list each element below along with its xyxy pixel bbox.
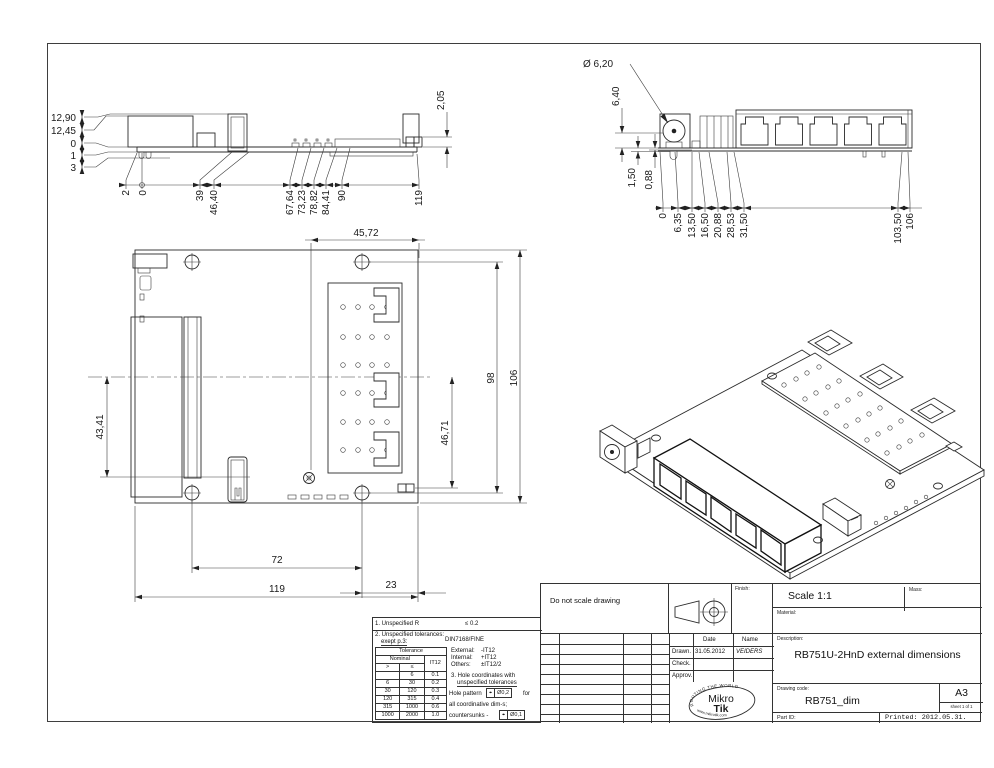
finish-label: Finish: <box>735 586 750 592</box>
sheet-label: sheet 1 of 1 <box>940 704 983 709</box>
description-label: Description: <box>777 636 803 642</box>
dimension-label: 12,90 <box>51 113 76 124</box>
shield-plate <box>328 283 402 473</box>
dimension-label: 0,88 <box>644 170 655 190</box>
front-width-dims: 0 6,35 13,50 16,50 20,88 28,53 31,50 103… <box>655 152 922 244</box>
material-cell: Material: <box>773 608 982 634</box>
description-cell: Description: RB751U-2HnD external dimens… <box>773 634 982 684</box>
note3-line2: unspecified tolerances <box>457 680 517 687</box>
hole-pattern-tolerance: ⌖Ø0,2 <box>486 688 512 698</box>
dimension-label: 20,88 <box>713 213 724 238</box>
dimension-label: 12,45 <box>51 126 76 137</box>
tol-row: 60.1 <box>376 672 447 680</box>
tol-row: 6300.2 <box>376 680 447 688</box>
note-unspecified-r: 1. Unspecified R <box>375 621 419 627</box>
dimension-label: 119 <box>414 190 425 206</box>
logo-tik: Tik <box>714 703 729 715</box>
dimension-label: 13,50 <box>687 213 698 238</box>
position-symbol-icon: ⌖ <box>487 689 494 697</box>
dimension-label: 46,71 <box>440 420 451 445</box>
projection-symbol-cell <box>669 584 732 634</box>
check-label: Check. <box>672 661 691 667</box>
dimension-label: 72 <box>271 555 283 566</box>
dimension-label: 6,35 <box>673 213 684 233</box>
format-value: A3 <box>940 687 983 699</box>
dimension-label: 0 <box>70 139 76 150</box>
dimension-label: 39 <box>195 190 206 202</box>
dimension-label: 28,53 <box>726 213 737 238</box>
hole-pattern-label: Hole pattern <box>449 691 482 697</box>
tol-row: 100020001.0 <box>376 712 447 720</box>
dimension-label: 106 <box>905 213 916 230</box>
isometric-view <box>600 330 984 579</box>
dimension-label: 119 <box>269 584 285 595</box>
dimension-label: 1 <box>70 151 76 162</box>
dc-jack-top <box>133 254 167 322</box>
drawn-label: Drawn. <box>672 649 691 655</box>
side-view: 12,90 12,45 0 1 3 2,05 <box>51 90 452 215</box>
drawing-code-label: Drawing code: <box>777 686 809 692</box>
printed-date: Printed: 2012.05.31. <box>885 714 967 722</box>
projection-symbol-icon <box>669 584 731 633</box>
dimension-label: 31,50 <box>739 213 750 238</box>
do-not-scale-cell: Do not scale drawing <box>541 584 669 634</box>
ethernet-ports <box>736 110 912 157</box>
dimension-label: 67,64 <box>285 190 296 215</box>
tol-row: 1203150.4 <box>376 696 447 704</box>
external-label: External: <box>451 648 475 654</box>
description-text: RB751U-2HnD external dimensions <box>773 649 982 661</box>
tol-row: 301200.3 <box>376 688 447 696</box>
tol-title: Tolerance <box>376 648 447 656</box>
front-view: Ø 6,20 6,40 1,50 0,88 <box>583 59 922 244</box>
screw <box>304 473 315 484</box>
dimension-label: 1,50 <box>627 168 638 188</box>
date-header: Date <box>703 637 716 643</box>
title-block: Do not scale drawing Finish: Scale 1:1 M… <box>540 583 981 722</box>
dimension-label: 78,82 <box>309 190 320 215</box>
notes-box: 1. Unspecified R ≤ 0.2 2. Unspecified to… <box>372 617 541 723</box>
dimension-label: 16,50 <box>700 213 711 238</box>
dimension-label: 98 <box>486 372 497 384</box>
dimension-label: 3 <box>70 163 76 174</box>
others-value: ±IT12/2 <box>481 662 501 668</box>
usb-top <box>228 457 247 502</box>
drawn-name: VEIDERS <box>736 649 762 655</box>
tol-it12: IT12 <box>424 656 446 672</box>
position-symbol-icon: ⌖ <box>500 711 507 719</box>
tol-nominal: Nominal <box>376 656 425 664</box>
scale-value: Scale 1:1 <box>788 590 832 602</box>
revision-table <box>541 634 669 723</box>
finish-cell: Finish: <box>732 584 773 634</box>
dimension-label: 0 <box>138 190 149 196</box>
dimension-label: 43,41 <box>95 414 106 439</box>
dimension-label: 23 <box>385 580 397 591</box>
dimension-label: 6,40 <box>611 86 622 106</box>
internal-value: +IT12 <box>481 655 497 661</box>
scale-cell: Scale 1:1 Mass: <box>773 584 982 608</box>
dimension-label: 45,72 <box>353 228 378 239</box>
dimension-label: 2 <box>121 190 132 196</box>
dimension-label: 2,05 <box>436 90 447 110</box>
note-unspecified-tol: 2. Unspecified tolerances: <box>375 632 444 638</box>
diameter-dim: Ø 6,20 <box>583 59 668 123</box>
front-height-dims: 6,40 1,50 0,88 <box>611 86 692 189</box>
dimension-label: 73,23 <box>297 190 308 215</box>
drawing-sheet: 12,90 12,45 0 1 3 2,05 <box>0 0 994 768</box>
side-components <box>292 114 422 156</box>
do-not-scale-text: Do not scale drawing <box>550 596 620 605</box>
format-cell: A3 sheet 1 of 1 <box>939 684 982 713</box>
drawn-date: 31.05.2012 <box>695 649 725 655</box>
side-connector-dim: 2,05 <box>423 90 452 168</box>
for-suffix: for <box>523 691 530 697</box>
name-header: Name <box>742 637 758 643</box>
dimension-label: 46,40 <box>209 190 220 215</box>
mounting-holes <box>183 253 371 502</box>
dimension-label: 90 <box>337 190 348 202</box>
pin-header <box>692 116 733 148</box>
others-label: Others: <box>451 662 471 668</box>
countersunks-label: countersunks - <box>449 713 488 719</box>
dimension-label: 106 <box>509 369 520 386</box>
tol-row: 31510000.6 <box>376 704 447 712</box>
note-din: DIN7168/FINE <box>445 637 484 643</box>
ethernet-top <box>131 317 201 497</box>
top-dims: 45,72 98 106 43,41 46,71 <box>95 228 527 602</box>
approv-label: Approv. <box>672 673 692 679</box>
mikrotik-logo: ROUTING THE WORLD www.mikrotik.com Mikro… <box>670 682 774 723</box>
external-value: -IT12 <box>481 648 495 654</box>
material-label: Material: <box>777 610 796 616</box>
dimension-label: 0 <box>658 213 669 219</box>
note-unspecified-r-value: ≤ 0.2 <box>465 621 478 627</box>
internal-label: Internal: <box>451 655 473 661</box>
dimension-label: 103,50 <box>893 213 904 244</box>
drawing-code-value: RB751_dim <box>805 695 860 707</box>
dimension-label: Ø 6,20 <box>583 59 613 70</box>
signature-table: Date Name Drawn. 31.05.2012 VEIDERS Chec… <box>669 634 773 682</box>
reset-button <box>398 484 414 492</box>
led-row <box>288 495 348 499</box>
note-except: exept p.3: <box>381 639 407 646</box>
logo-cell: ROUTING THE WORLD www.mikrotik.com Mikro… <box>669 682 773 723</box>
part-id-label: Part ID: <box>777 715 796 721</box>
dimension-label: 84,41 <box>321 190 332 215</box>
note3-line1: 3. Hole coordinates with <box>451 673 515 679</box>
tolerance-table: Tolerance NominalIT12 >≤ 60.1 6300.2 301… <box>375 647 447 720</box>
partid-row: Part ID: Printed: 2012.05.31. <box>773 713 982 723</box>
coordinative-note: all coordinative dim-s; <box>449 702 507 708</box>
countersunks-tolerance: ⌖Ø0,1 <box>499 710 525 720</box>
side-height-dims: 12,90 12,45 0 1 3 <box>51 110 228 174</box>
drawing-code-cell: Drawing code: RB751_dim <box>773 684 939 713</box>
top-view: 45,72 98 106 43,41 46,71 <box>88 228 527 602</box>
